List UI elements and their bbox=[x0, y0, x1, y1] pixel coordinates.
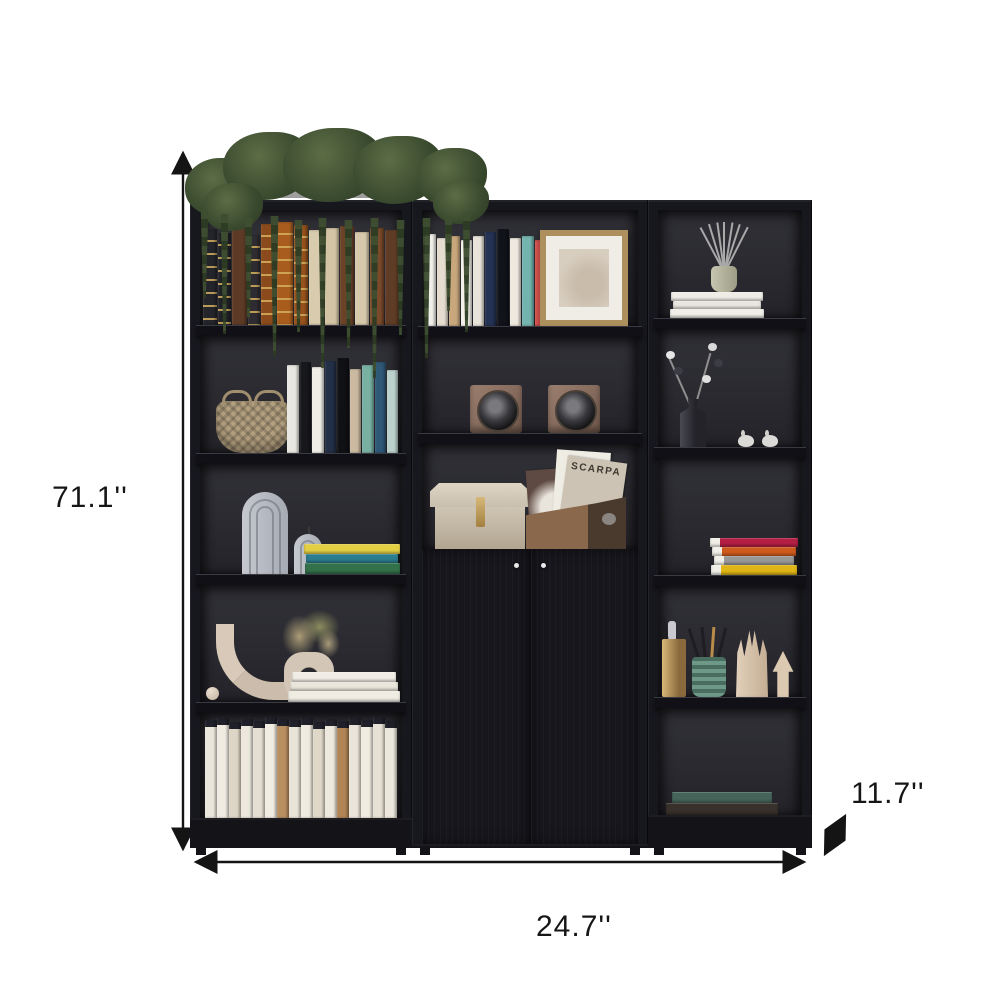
cotton-bud bbox=[702, 375, 711, 383]
plant-vine bbox=[443, 216, 454, 311]
book bbox=[373, 717, 385, 818]
framed-art bbox=[540, 230, 628, 326]
cotton-bud bbox=[666, 351, 675, 359]
plant-vine bbox=[343, 220, 354, 348]
book-stack-colorful bbox=[304, 544, 400, 574]
unit-foot bbox=[196, 846, 206, 855]
unit-base bbox=[648, 815, 812, 848]
book bbox=[265, 717, 277, 818]
book bbox=[277, 719, 289, 818]
book bbox=[306, 554, 398, 563]
cotton-bud bbox=[674, 367, 683, 375]
unit-foot bbox=[654, 846, 664, 855]
book bbox=[305, 563, 400, 574]
bunny-figurine bbox=[738, 435, 754, 447]
book bbox=[241, 719, 253, 818]
book bbox=[510, 238, 521, 326]
book bbox=[290, 682, 398, 691]
book bbox=[292, 672, 396, 682]
figurine-large bbox=[736, 623, 768, 697]
speaker-left bbox=[470, 385, 522, 433]
right-shelf-3 bbox=[658, 457, 802, 575]
book bbox=[253, 721, 265, 818]
candle-wick bbox=[308, 527, 310, 534]
decor-box-clasp bbox=[476, 497, 485, 527]
pencil-cup bbox=[692, 657, 726, 697]
left-shelf-5 bbox=[200, 712, 402, 818]
book bbox=[497, 229, 509, 326]
holder-hole bbox=[602, 513, 616, 525]
book bbox=[217, 718, 229, 818]
speaker-driver bbox=[555, 390, 597, 432]
book bbox=[712, 547, 796, 556]
plant-vine bbox=[219, 214, 230, 334]
cotton-vase bbox=[680, 399, 706, 447]
dried-flowers bbox=[282, 610, 340, 658]
plant-vine bbox=[395, 220, 406, 335]
book bbox=[289, 720, 301, 818]
book bbox=[313, 722, 325, 818]
cabinet-door-right bbox=[531, 549, 638, 844]
left-shelf-3 bbox=[200, 463, 402, 574]
plant-vine bbox=[293, 220, 304, 332]
cabinet-door-left bbox=[422, 549, 529, 844]
cotton-bud bbox=[714, 359, 723, 367]
width-dimension-label: 24.7'' bbox=[536, 910, 612, 944]
book bbox=[304, 544, 400, 554]
right-shelf-2 bbox=[658, 328, 802, 447]
trailing-plant bbox=[185, 128, 490, 378]
unit-base bbox=[190, 818, 412, 848]
right-shelf-4 bbox=[658, 585, 802, 697]
speaker-driver bbox=[477, 390, 519, 432]
book bbox=[362, 365, 374, 453]
woven-basket bbox=[216, 401, 290, 453]
book bbox=[312, 367, 324, 453]
bunny-figurine bbox=[762, 435, 778, 447]
height-dimension-label: 71.1'' bbox=[52, 481, 128, 515]
unit-foot bbox=[420, 846, 430, 855]
book bbox=[287, 365, 299, 453]
book bbox=[672, 792, 772, 803]
unit-foot bbox=[796, 846, 806, 855]
product-image: 71.1'' 24.7'' 11.7'' bbox=[0, 0, 1000, 1000]
book bbox=[361, 720, 373, 818]
book bbox=[350, 369, 361, 453]
book bbox=[301, 718, 313, 818]
middle-shelf-3: SCARPA bbox=[422, 443, 638, 549]
unit-foot bbox=[630, 846, 640, 855]
metal-tool bbox=[668, 621, 676, 641]
basket-handle bbox=[222, 390, 252, 405]
book-pile-colorful bbox=[710, 538, 798, 575]
book bbox=[522, 236, 534, 326]
white-books-row bbox=[205, 717, 397, 818]
right-shelf-5 bbox=[658, 707, 802, 815]
plant-foliage bbox=[433, 180, 489, 224]
right-shelf-1 bbox=[658, 210, 802, 318]
arch-ring bbox=[256, 506, 274, 574]
book bbox=[711, 565, 797, 575]
plant-vine bbox=[317, 218, 328, 368]
book bbox=[671, 292, 763, 301]
diffuser-vessel bbox=[711, 266, 737, 292]
sphere-decor bbox=[206, 687, 219, 700]
magazine-file: SCARPA bbox=[526, 449, 626, 549]
art-print bbox=[559, 249, 609, 307]
book bbox=[349, 718, 361, 818]
plant-vine bbox=[461, 212, 472, 332]
cotton-bud bbox=[708, 343, 717, 351]
plant-vine bbox=[199, 210, 210, 298]
book bbox=[205, 720, 217, 818]
white-book-stack bbox=[288, 672, 400, 702]
magazine-title: SCARPA bbox=[566, 460, 627, 479]
unit-base bbox=[412, 844, 648, 848]
book bbox=[670, 309, 764, 318]
plant-vine bbox=[269, 216, 280, 356]
basket-handle bbox=[254, 390, 284, 405]
pencil bbox=[710, 627, 715, 661]
pen-cup bbox=[662, 639, 686, 697]
decor-box bbox=[430, 483, 530, 549]
curve-sculpture bbox=[216, 624, 292, 700]
bookcase-right-unit bbox=[648, 200, 812, 848]
flat-book-pair bbox=[666, 792, 778, 815]
depth-dimension-label: 11.7'' bbox=[851, 777, 925, 811]
plant-vine bbox=[421, 218, 432, 358]
speaker-right bbox=[548, 385, 600, 433]
left-shelf-4 bbox=[200, 584, 402, 702]
depth-arrow bbox=[825, 816, 845, 854]
white-book-stack bbox=[670, 292, 764, 318]
book bbox=[229, 722, 241, 818]
arch-sculpture-large bbox=[242, 492, 288, 574]
book bbox=[714, 556, 794, 565]
reed-diffuser bbox=[694, 212, 754, 292]
plant-foliage bbox=[203, 183, 263, 231]
door-knob bbox=[541, 563, 546, 568]
unit-foot bbox=[396, 846, 406, 855]
book bbox=[666, 803, 778, 815]
book bbox=[288, 691, 400, 702]
plant-vine bbox=[369, 218, 380, 378]
door-knob bbox=[514, 563, 519, 568]
book bbox=[673, 301, 761, 309]
figurine-small bbox=[770, 651, 796, 697]
book bbox=[387, 370, 398, 453]
book bbox=[325, 719, 337, 818]
plant-vine bbox=[243, 218, 254, 318]
book bbox=[710, 538, 798, 547]
book bbox=[337, 721, 349, 818]
book bbox=[385, 721, 397, 818]
